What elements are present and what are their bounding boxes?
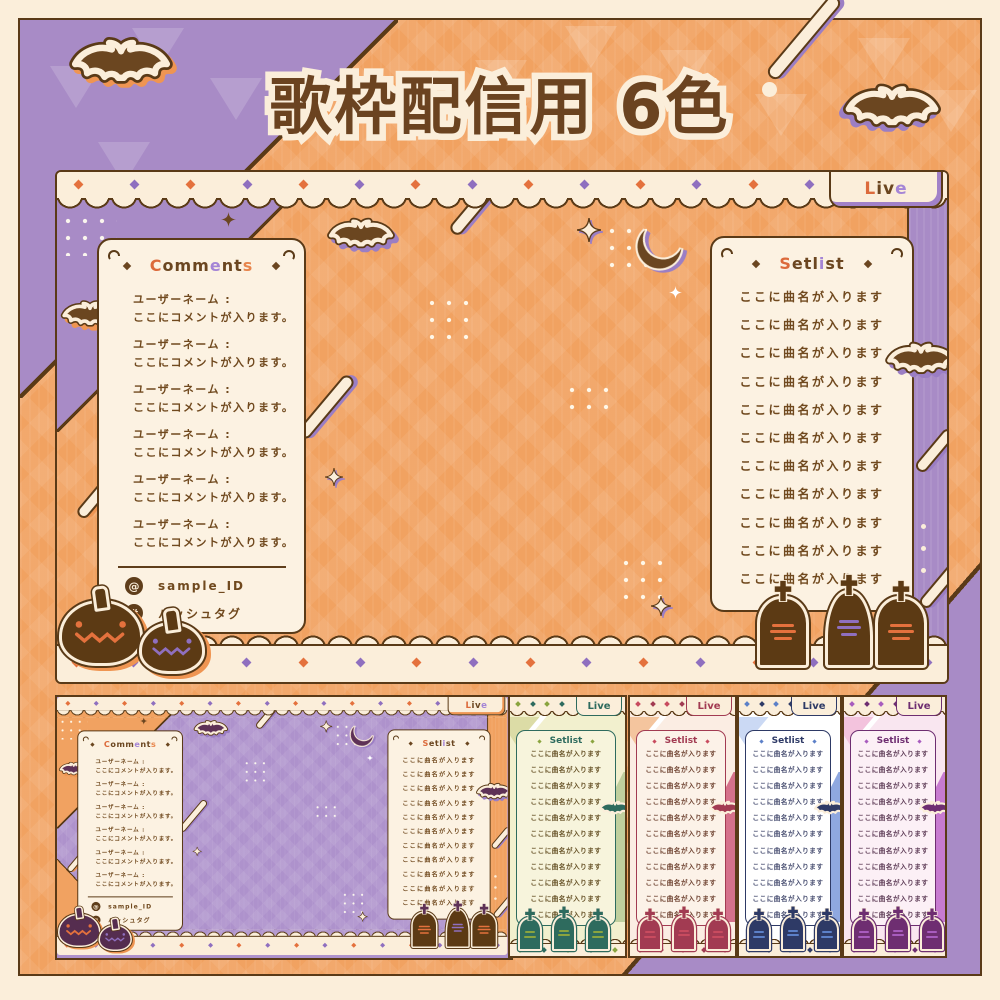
curl-decoration	[886, 244, 904, 258]
comment-entry: ユーザーネーム : ここにコメントが入ります。	[133, 516, 304, 552]
diamond-dots	[75, 181, 813, 188]
setlist-item: ここに曲名が入ります	[712, 311, 912, 339]
tombstone-icon	[781, 915, 805, 951]
setlist-item: ここに曲名が入ります	[712, 480, 912, 508]
page-title-text: 歌枠配信用 6色	[270, 56, 731, 146]
username-label: ユーザーネーム :	[95, 871, 182, 880]
username-label: ユーザーネーム :	[95, 780, 182, 789]
comment-entry: ユーザーネーム : ここにコメントが入ります。	[133, 291, 304, 327]
tombstone-icon	[825, 590, 873, 668]
sparkle-icon	[577, 218, 601, 242]
sparkle-icon	[325, 468, 343, 486]
setlist-title-text: Setlist	[423, 738, 456, 748]
setlist-item: ここに曲名が入ります	[712, 283, 912, 311]
bat-icon	[325, 216, 397, 256]
live-tab: Live	[576, 696, 622, 716]
setlist-title-text: Setlist	[779, 254, 844, 273]
variant-pink: Live Setlist ここに曲名が入りますここに曲名が入りますここに曲名が入…	[842, 695, 947, 958]
curl-decoration	[169, 734, 178, 741]
pumpkin-icon	[58, 914, 101, 947]
sparkle-icon	[320, 720, 332, 732]
divider	[88, 896, 173, 897]
curl-decoration	[107, 246, 125, 260]
tombstone-icon	[672, 915, 696, 951]
setlist-item: ここに曲名が入ります	[517, 746, 615, 762]
setlist-item: ここに曲名が入ります	[388, 839, 489, 853]
setlist-item: ここに曲名が入ります	[637, 746, 725, 762]
tombstone-icon	[706, 917, 730, 951]
variant-purple-content: Live Comments ユーザーネーム : ここにコメントが入ります。	[57, 697, 507, 955]
username-label: ユーザーネーム :	[95, 803, 182, 812]
live-tab: Live	[829, 170, 943, 208]
comments-title: Comments	[99, 256, 304, 275]
comment-text: ここにコメントが入ります。	[95, 857, 182, 866]
setlist-item: ここに曲名が入ります	[517, 875, 615, 891]
comments-title-text: Comments	[104, 740, 156, 750]
username-label: ユーザーネーム :	[95, 848, 182, 857]
setlist-item: ここに曲名が入ります	[851, 843, 935, 859]
hashtag-row: # ハッシュタグ	[91, 916, 182, 925]
setlist-title: Setlist	[851, 736, 935, 746]
setlist-item: ここに曲名が入ります	[712, 565, 912, 593]
comments-title: Comments	[78, 740, 182, 750]
diamond-dot	[166, 742, 170, 746]
sample-id-row: @ sample_ID	[91, 902, 182, 911]
setlist-item: ここに曲名が入ります	[637, 875, 725, 891]
comment-text: ここにコメントが入ります。	[133, 354, 304, 372]
diamond-dots	[66, 702, 439, 706]
setlist-item: ここに曲名が入ります	[851, 746, 935, 762]
scallop-border	[57, 710, 507, 718]
tombstone-icon	[815, 917, 839, 951]
comment-entry: ユーザーネーム : ここにコメントが入ります。	[95, 871, 182, 889]
diamond-dots	[745, 702, 793, 706]
diamond-dot	[90, 742, 94, 746]
setlist-item: ここに曲名が入ります	[388, 825, 489, 839]
diamond-dot	[752, 259, 760, 267]
variant-purple: Live Comments ユーザーネーム : ここにコメントが入ります。	[55, 695, 513, 960]
comment-entry: ユーザーネーム : ここにコメントが入ります。	[133, 471, 304, 507]
pumpkin-icon	[59, 600, 143, 666]
setlist-list: ここに曲名が入りますここに曲名が入りますここに曲名が入りますここに曲名が入ります…	[388, 753, 489, 910]
setlist-item: ここに曲名が入ります	[388, 853, 489, 867]
setlist-title: Setlist	[746, 736, 830, 746]
setlist-item: ここに曲名が入ります	[712, 424, 912, 452]
setlist-item: ここに曲名が入ります	[637, 859, 725, 875]
setlist-item: ここに曲名が入ります	[517, 891, 615, 907]
setlist-title: Setlist	[388, 738, 489, 748]
setlist-item: ここに曲名が入ります	[746, 762, 830, 778]
tombstone-icon	[586, 917, 610, 951]
comment-entry: ユーザーネーム : ここにコメントが入ります。	[95, 780, 182, 798]
setlist-list: ここに曲名が入りますここに曲名が入りますここに曲名が入りますここに曲名が入ります…	[712, 283, 912, 593]
setlist-item: ここに曲名が入ります	[637, 778, 725, 794]
pumpkin-icon	[98, 925, 131, 951]
comment-entry: ユーザーネーム : ここにコメントが入ります。	[133, 336, 304, 372]
setlist-item: ここに曲名が入ります	[712, 537, 912, 565]
live-tab: Live	[896, 696, 942, 716]
setlist-title: Setlist	[517, 736, 615, 746]
comment-text: ここにコメントが入ります。	[95, 880, 182, 889]
diamond-dot	[272, 261, 280, 269]
comment-entry: ユーザーネーム : ここにコメントが入ります。	[95, 757, 182, 775]
tombstone-icon	[920, 917, 944, 951]
curl-decoration	[392, 733, 401, 740]
comment-entry: ユーザーネーム : ここにコメントが入ります。	[95, 826, 182, 844]
comment-entry: ユーザーネーム : ここにコメントが入ります。	[133, 426, 304, 462]
tombstone-icon	[757, 596, 809, 668]
overlay-top-border	[57, 697, 507, 711]
live-label: Live	[466, 701, 488, 711]
promo-image: 歌枠配信用 6色 歌枠配信用 6色	[0, 0, 1000, 1000]
diamond-dots	[636, 702, 684, 706]
setlist-item: ここに曲名が入ります	[388, 810, 489, 824]
setlist-item: ここに曲名が入ります	[746, 859, 830, 875]
tombstone-icon	[852, 917, 876, 951]
curl-decoration	[82, 734, 91, 741]
setlist-panel: Setlist ここに曲名が入りますここに曲名が入りますここに曲名が入りますここ…	[710, 236, 914, 612]
setlist-item: ここに曲名が入ります	[712, 452, 912, 480]
dot-column	[494, 875, 497, 908]
setlist-item: ここに曲名が入ります	[851, 762, 935, 778]
username-label: ユーザーネーム :	[95, 757, 182, 766]
comments-list: ユーザーネーム : ここにコメントが入ります。 ユーザーネーム : ここにコメン…	[95, 757, 182, 889]
curl-decoration	[278, 246, 296, 260]
setlist-item: ここに曲名が入ります	[851, 859, 935, 875]
setlist-list: ここに曲名が入りますここに曲名が入りますここに曲名が入りますここに曲名が入ります…	[517, 746, 615, 923]
stream-overlay-preview: Live Comments ユーザーネーム : ここにコメントが入ります。	[57, 697, 507, 955]
setlist-item: ここに曲名が入ります	[746, 875, 830, 891]
setlist-item: ここに曲名が入ります	[517, 778, 615, 794]
setlist-item: ここに曲名が入ります	[388, 753, 489, 767]
setlist-item: ここに曲名が入ります	[517, 826, 615, 842]
bat-icon	[475, 782, 507, 803]
page-title: 歌枠配信用 6色 歌枠配信用 6色	[0, 56, 1000, 166]
sparkle-icon	[358, 912, 368, 922]
diamond-dots	[850, 702, 898, 706]
setlist-panel: Setlist ここに曲名が入りますここに曲名が入りますここに曲名が入りますここ…	[387, 729, 490, 919]
setlist-item: ここに曲名が入ります	[637, 843, 725, 859]
sample-id-row: @ sample_ID	[125, 577, 304, 595]
username-label: ユーザーネーム :	[133, 381, 304, 399]
setlist-item: ここに曲名が入ります	[746, 826, 830, 842]
username-label: ユーザーネーム :	[133, 426, 304, 444]
stream-overlay-preview: Live Comments ユーザーネーム : ここにコメントが入ります。	[55, 170, 949, 684]
diamond-dot	[409, 741, 413, 745]
diamond-dots	[516, 702, 564, 706]
comment-text: ここにコメントが入ります。	[133, 534, 304, 552]
setlist-item: ここに曲名が入ります	[388, 882, 489, 896]
username-label: ユーザーネーム :	[133, 336, 304, 354]
comment-text: ここにコメントが入ります。	[133, 399, 304, 417]
tombstone-icon	[446, 909, 470, 948]
comments-list: ユーザーネーム : ここにコメントが入ります。 ユーザーネーム : ここにコメン…	[133, 291, 304, 552]
tombstone-icon	[411, 912, 437, 948]
comment-text: ここにコメントが入ります。	[133, 489, 304, 507]
dot-grid	[569, 387, 611, 413]
tombstone-icon	[747, 917, 771, 951]
diamond-dot	[863, 259, 871, 267]
bat-icon	[883, 340, 949, 382]
setlist-list: ここに曲名が入りますここに曲名が入りますここに曲名が入りますここに曲名が入ります…	[637, 746, 725, 923]
setlist-item: ここに曲名が入ります	[637, 891, 725, 907]
live-label: Live	[864, 179, 907, 199]
sparkle-icon	[140, 717, 148, 725]
dot-grid	[316, 806, 337, 819]
overlay-top-border	[57, 172, 947, 200]
comment-text: ここにコメントが入ります。	[133, 309, 304, 327]
live-tab: Live	[791, 696, 837, 716]
tombstone-icon	[886, 915, 910, 951]
bat-icon	[193, 719, 229, 739]
sparkle-icon	[193, 847, 202, 856]
sparkle-icon	[367, 754, 374, 761]
scallop-border	[57, 198, 947, 213]
comments-panel: Comments ユーザーネーム : ここにコメントが入ります。 ユーザーネーム…	[77, 730, 183, 930]
setlist-panel: Setlist ここに曲名が入りますここに曲名が入りますここに曲名が入りますここ…	[636, 730, 726, 926]
pumpkin-icon	[139, 622, 205, 674]
sparkle-icon	[221, 212, 236, 227]
setlist-item: ここに曲名が入ります	[637, 762, 725, 778]
setlist-item: ここに曲名が入ります	[712, 396, 912, 424]
comment-text: ここにコメントが入ります。	[95, 835, 182, 844]
setlist-item: ここに曲名が入ります	[712, 339, 912, 367]
setlist-item: ここに曲名が入ります	[517, 843, 615, 859]
tombstone-icon	[875, 596, 927, 668]
username-label: ユーザーネーム :	[133, 471, 304, 489]
dot-grid	[429, 300, 471, 342]
setlist-panel: Setlist ここに曲名が入りますここに曲名が入りますここに曲名が入りますここ…	[850, 730, 936, 926]
divider	[118, 566, 286, 568]
setlist-item: ここに曲名が入ります	[746, 843, 830, 859]
comments-title-text: Comments	[150, 256, 254, 275]
setlist-item: ここに曲名が入ります	[746, 891, 830, 907]
dot-column	[921, 524, 926, 590]
bat-icon	[597, 799, 627, 819]
at-icon: @	[125, 577, 143, 595]
live-tab: Live	[686, 696, 732, 716]
sample-id-text: sample_ID	[108, 903, 152, 910]
variant-blue: Live Setlist ここに曲名が入りますここに曲名が入りますここに曲名が入…	[737, 695, 842, 958]
sample-id-text: sample_ID	[158, 579, 245, 593]
comment-text: ここにコメントが入ります。	[95, 766, 182, 775]
diamond-dot	[122, 261, 130, 269]
setlist-title: Setlist	[637, 736, 725, 746]
live-tab: Live	[448, 697, 506, 715]
setlist-item: ここに曲名が入ります	[851, 891, 935, 907]
setlist-item: ここに曲名が入ります	[712, 509, 912, 537]
setlist-panel: Setlist ここに曲名が入りますここに曲名が入りますここに曲名が入りますここ…	[745, 730, 831, 926]
bat-icon	[707, 799, 737, 819]
comment-text: ここにコメントが入ります。	[95, 789, 182, 798]
sparkle-icon	[669, 284, 682, 297]
bat-icon	[812, 799, 842, 819]
diamond-dot	[465, 741, 469, 745]
setlist-item: ここに曲名が入ります	[851, 826, 935, 842]
tombstone-icon	[471, 912, 497, 948]
setlist-panel: Setlist ここに曲名が入りますここに曲名が入りますここに曲名が入りますここ…	[516, 730, 616, 926]
sparkle-icon	[651, 596, 671, 616]
curl-decoration	[476, 733, 485, 740]
setlist-item: ここに曲名が入ります	[637, 826, 725, 842]
setlist-item: ここに曲名が入ります	[851, 875, 935, 891]
username-label: ユーザーネーム :	[133, 291, 304, 309]
tombstone-icon	[518, 917, 542, 951]
comment-entry: ユーザーネーム : ここにコメントが入ります。	[95, 848, 182, 866]
variant-red: Live Setlist ここに曲名が入りますここに曲名が入りますここに曲名が入…	[628, 695, 737, 958]
setlist-item: ここに曲名が入ります	[746, 778, 830, 794]
tombstone-icon	[552, 915, 576, 951]
at-icon: @	[91, 902, 100, 911]
variant-green: Live Setlist ここに曲名が入りますここに曲名が入りますここに曲名が入…	[508, 695, 627, 958]
comment-entry: ユーザーネーム : ここにコメントが入ります。	[95, 803, 182, 821]
curl-decoration	[720, 244, 738, 258]
setlist-title: Setlist	[712, 254, 912, 273]
setlist-item: ここに曲名が入ります	[746, 746, 830, 762]
setlist-item: ここに曲名が入ります	[388, 767, 489, 781]
hashtag-row: # ハッシュタグ	[125, 604, 304, 622]
bat-icon	[917, 799, 947, 819]
tombstone-icon	[638, 917, 662, 951]
setlist-list: ここに曲名が入りますここに曲名が入りますここに曲名が入りますここに曲名が入ります…	[746, 746, 830, 923]
username-label: ユーザーネーム :	[95, 826, 182, 835]
username-label: ユーザーネーム :	[133, 516, 304, 534]
setlist-item: ここに曲名が入ります	[517, 859, 615, 875]
setlist-item: ここに曲名が入ります	[388, 896, 489, 910]
setlist-item: ここに曲名が入ります	[517, 762, 615, 778]
dot-grid	[245, 762, 266, 783]
comment-entry: ユーザーネーム : ここにコメントが入ります。	[133, 381, 304, 417]
comment-text: ここにコメントが入ります。	[133, 444, 304, 462]
setlist-item: ここに曲名が入ります	[851, 778, 935, 794]
setlist-item: ここに曲名が入ります	[712, 368, 912, 396]
comments-panel: Comments ユーザーネーム : ここにコメントが入ります。 ユーザーネーム…	[97, 238, 306, 634]
setlist-item: ここに曲名が入ります	[388, 867, 489, 881]
comment-text: ここにコメントが入ります。	[95, 812, 182, 821]
setlist-list: ここに曲名が入りますここに曲名が入りますここに曲名が入りますここに曲名が入ります…	[851, 746, 935, 923]
